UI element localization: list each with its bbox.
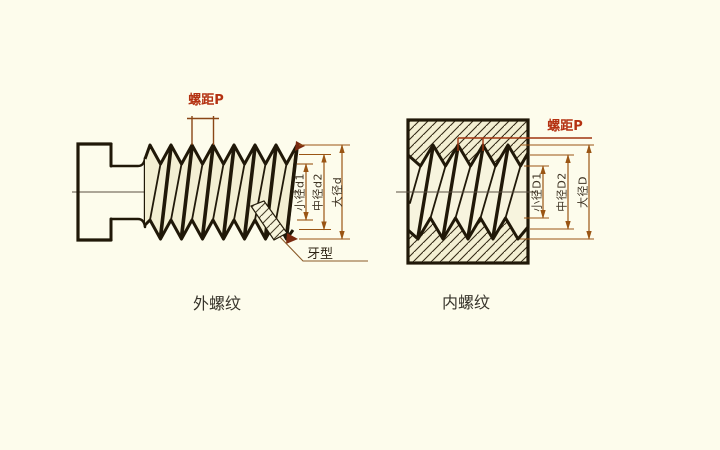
internal-thread-figure: 螺距P 小径D1 中径D2 大径D 内螺纹 bbox=[396, 118, 594, 312]
internal-pitch-label: 螺距P bbox=[547, 118, 583, 134]
external-thread-caption: 外螺纹 bbox=[193, 294, 241, 313]
external-pitch-label: 螺距P bbox=[188, 92, 224, 108]
diagram-canvas: 螺距P 小径d1 中径d2 大径d 牙型 外螺纹 bbox=[0, 0, 720, 450]
internal-minor-diameter-label: 小径D1 bbox=[531, 172, 544, 211]
external-pitch-marker bbox=[187, 116, 219, 145]
profile-label: 牙型 bbox=[307, 247, 333, 262]
external-thread-figure: 螺距P 小径d1 中径d2 大径d 牙型 外螺纹 bbox=[72, 92, 368, 313]
internal-thread-caption: 内螺纹 bbox=[442, 293, 490, 312]
external-pitch-diameter-label: 中径d2 bbox=[312, 173, 325, 211]
external-major-diameter-label: 大径d bbox=[330, 177, 344, 207]
thread-diagram: 螺距P 小径d1 中径d2 大径d 牙型 外螺纹 bbox=[0, 0, 720, 450]
external-minor-diameter-label: 小径d1 bbox=[294, 173, 307, 211]
internal-pitch-diameter-label: 中径D2 bbox=[556, 172, 569, 211]
internal-major-diameter-label: 大径D bbox=[576, 176, 590, 208]
